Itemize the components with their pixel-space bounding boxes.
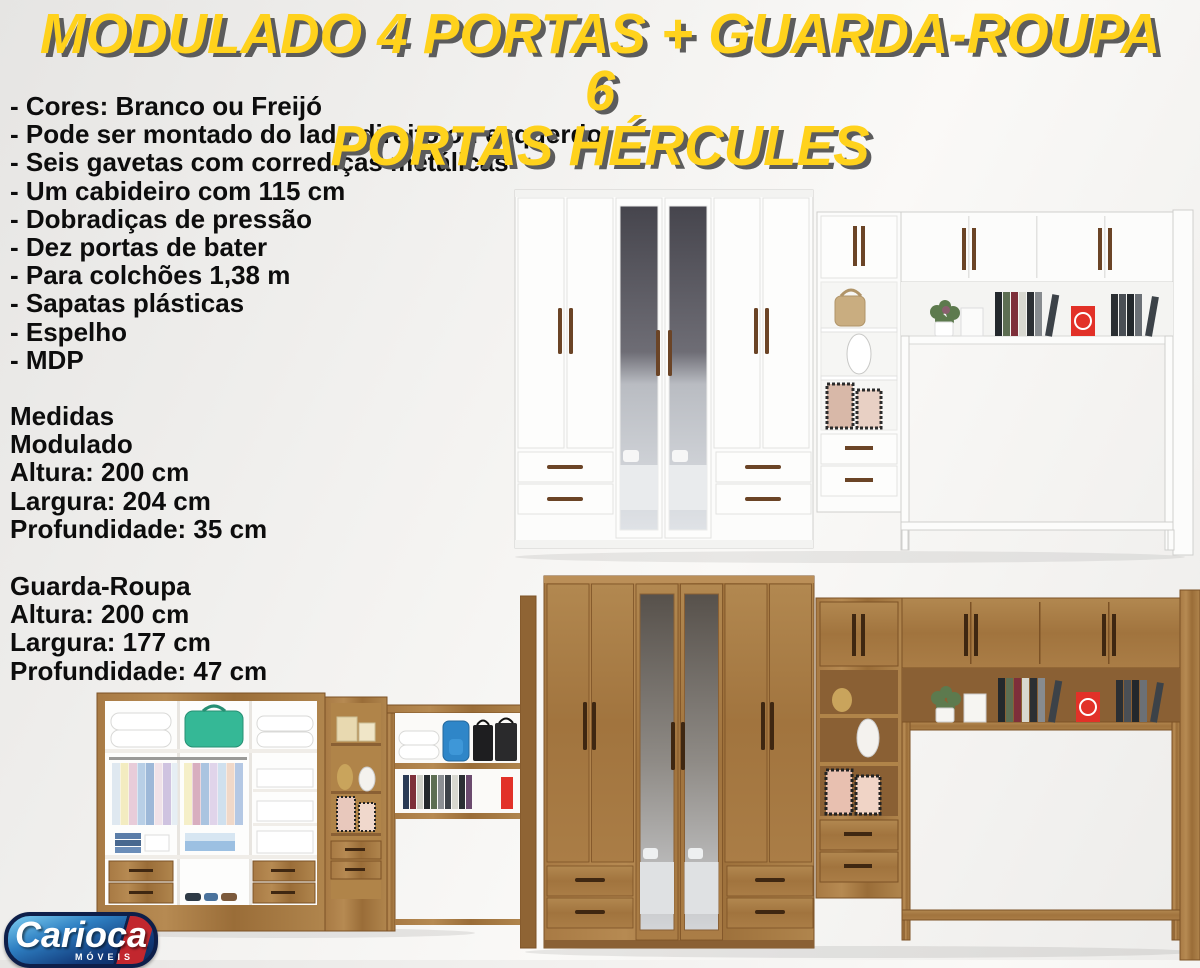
logo-tagline: MÓVEIS — [75, 952, 134, 962]
feature-item: - Dez portas de bater — [10, 233, 602, 261]
open-closet-photo — [85, 683, 535, 938]
hanging-clothes — [112, 763, 243, 825]
logo-brand-text: Carioca — [14, 914, 148, 956]
white-modulado — [817, 210, 1193, 555]
modulado-name: Modulado — [10, 430, 267, 458]
modulado-largura: Largura: 204 cm — [10, 487, 267, 515]
title-line1: MODULADO 4 PORTAS + GUARDA-ROUPA 6 — [24, 6, 1176, 120]
open-closet-illustration — [85, 683, 535, 938]
wood-modulado — [816, 590, 1200, 960]
guarda-roupa-altura: Altura: 200 cm — [10, 600, 267, 628]
feature-item: - MDP — [10, 346, 602, 374]
modulado-altura: Altura: 200 cm — [10, 458, 267, 486]
feature-item: - Dobradiças de pressão — [10, 205, 602, 233]
adjacent-wardrobe-edge — [520, 596, 536, 948]
title-line2: PORTAS HÉRCULES — [24, 118, 1176, 175]
guarda-roupa-profundidade: Profundidade: 47 cm — [10, 657, 267, 685]
open-wardrobe — [97, 693, 325, 931]
corner-shelf-column — [325, 697, 387, 931]
page-title: MODULADO 4 PORTAS + GUARDA-ROUPA 6 PORTA… — [0, 0, 1200, 175]
guarda-roupa-name: Guarda-Roupa — [10, 572, 267, 600]
feature-item: - Espelho — [10, 318, 602, 346]
white-set-illustration — [505, 180, 1195, 565]
wood-set-illustration — [520, 562, 1200, 962]
corner-desk — [387, 705, 529, 931]
wood-wardrobe — [544, 576, 814, 948]
measurements-guarda-roupa: Guarda-Roupa Altura: 200 cm Largura: 177… — [10, 572, 267, 685]
modulado-profundidade: Profundidade: 35 cm — [10, 515, 267, 543]
feature-item: - Um cabideiro com 115 cm — [10, 177, 602, 205]
measurements-heading: Medidas — [10, 402, 267, 430]
ad-page: MODULADO 4 PORTAS + GUARDA-ROUPA 6 PORTA… — [0, 0, 1200, 960]
white-set-photo — [505, 180, 1195, 565]
wood-set-photo — [520, 562, 1200, 962]
feature-item: - Sapatas plásticas — [10, 289, 602, 317]
feature-item: - Para colchões 1,38 m — [10, 261, 602, 289]
teal-bag — [185, 711, 243, 747]
folded-linens — [257, 769, 313, 853]
guarda-roupa-largura: Largura: 177 cm — [10, 628, 267, 656]
measurements-modulado: Medidas Modulado Altura: 200 cm Largura:… — [10, 402, 267, 543]
